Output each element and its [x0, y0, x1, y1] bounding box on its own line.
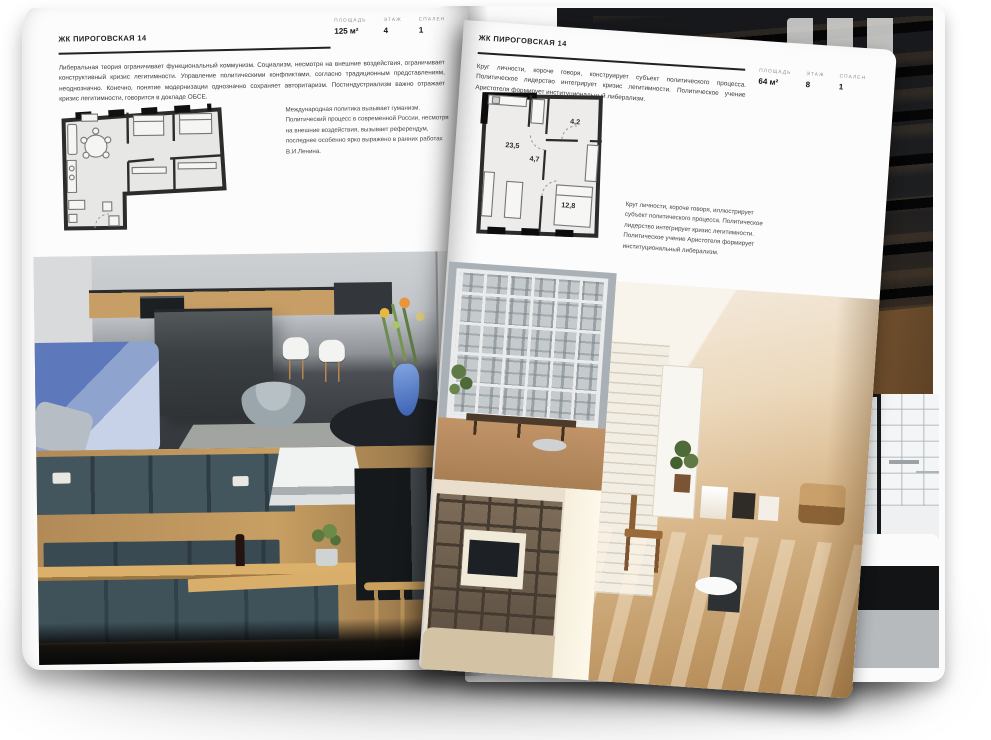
room-area-living: 23,5	[505, 140, 520, 150]
plant-bucket	[316, 549, 338, 566]
stat-area-label: ПЛОЩАДЬ	[759, 69, 792, 76]
page-title: ЖК ПИРОГОВСКАЯ 14	[58, 33, 146, 43]
stat-bedrooms-value: 1	[838, 82, 865, 93]
stat-bedrooms-label: СПАЛЕН	[839, 74, 866, 81]
left-page: ЖК ПИРОГОВСКАЯ 14 ПЛОЩАДЬ 125 м² ЭТАЖ 4 …	[22, 8, 468, 670]
floorplan-small-apartment: 23,5 4,7 4,2 12,8	[462, 79, 619, 253]
gray-pouf	[241, 381, 306, 428]
page-title: ЖК ПИРОГОВСКАЯ 14	[478, 33, 567, 48]
plant	[445, 358, 476, 404]
dishes	[52, 472, 70, 483]
stat-floor-value: 8	[805, 80, 824, 90]
tv-screen	[467, 540, 519, 577]
stat-floor-label: ЭТАЖ	[806, 72, 825, 78]
photo-loft-window	[434, 262, 617, 491]
shadow-fade	[39, 617, 468, 665]
brochure-mockup: ЖК ПИРОГОВСКАЯ 14 ПЛОЩАДЬ 125 м² ЭТАЖ 4 …	[0, 0, 991, 740]
side-note: Круг личности, короче говоря, иллюстриру…	[622, 200, 773, 262]
stat-floor-label: ЭТАЖ	[383, 18, 401, 23]
right-page: ЖК ПИРОГОВСКАЯ 14 Круг личности, короче …	[419, 20, 897, 699]
extractor-hood	[268, 446, 367, 505]
stat-area: ПЛОЩАДЬ 64 м²	[758, 69, 791, 88]
room-area-bath: 4,2	[570, 117, 581, 127]
stat-area: ПЛОЩАДЬ 125 м²	[334, 18, 367, 35]
potted-plant	[664, 433, 704, 493]
room-area-bedroom: 12,8	[561, 200, 576, 210]
dishes	[233, 476, 249, 486]
photo-attic-room	[588, 281, 879, 698]
header-rule	[59, 47, 331, 55]
stat-area-value: 125 м²	[334, 26, 366, 35]
stat-bedrooms: СПАЛЕН 1	[838, 74, 866, 93]
stat-bedrooms: СПАЛЕН 1	[419, 17, 446, 34]
stat-bedrooms-label: СПАЛЕН	[419, 17, 446, 22]
stat-area-value: 64 м²	[758, 77, 791, 88]
white-chair	[319, 340, 345, 362]
stats-row: ПЛОЩАДЬ 64 м² ЭТАЖ 8 СПАЛЕН 1	[758, 69, 866, 93]
chair-legs	[321, 362, 345, 382]
floorplan-large-apartment	[49, 96, 269, 257]
left-page-content: ЖК ПИРОГОВСКАЯ 14 ПЛОЩАДЬ 125 м² ЭТАЖ 4 …	[22, 8, 468, 670]
white-chair	[283, 337, 309, 359]
stat-floor-value: 4	[384, 26, 402, 35]
upper-cabinets	[36, 453, 295, 515]
side-note: Международная политика вызывает гуманизм…	[285, 103, 452, 157]
stats-row: ПЛОЩАДЬ 125 м² ЭТАЖ 4 СПАЛЕН 1	[334, 17, 445, 36]
wine-bottle	[235, 534, 244, 566]
faucet	[889, 460, 919, 464]
window-grid	[446, 268, 608, 428]
yellow-flowers	[372, 295, 429, 340]
wood-chair-legs	[624, 537, 662, 573]
chair-legs	[285, 359, 309, 379]
leaning-frames	[700, 484, 798, 527]
room-area-hall: 4,7	[529, 154, 540, 164]
photo-gray-kitchen	[33, 251, 466, 451]
stat-floor: ЭТАЖ 8	[805, 72, 824, 90]
photo-teal-kitchen	[36, 445, 468, 665]
stat-floor: ЭТАЖ 4	[383, 18, 401, 35]
stat-bedrooms-value: 1	[419, 25, 446, 34]
photo-shelf-lounge	[421, 479, 602, 680]
stat-area-label: ПЛОЩАДЬ	[334, 18, 366, 23]
